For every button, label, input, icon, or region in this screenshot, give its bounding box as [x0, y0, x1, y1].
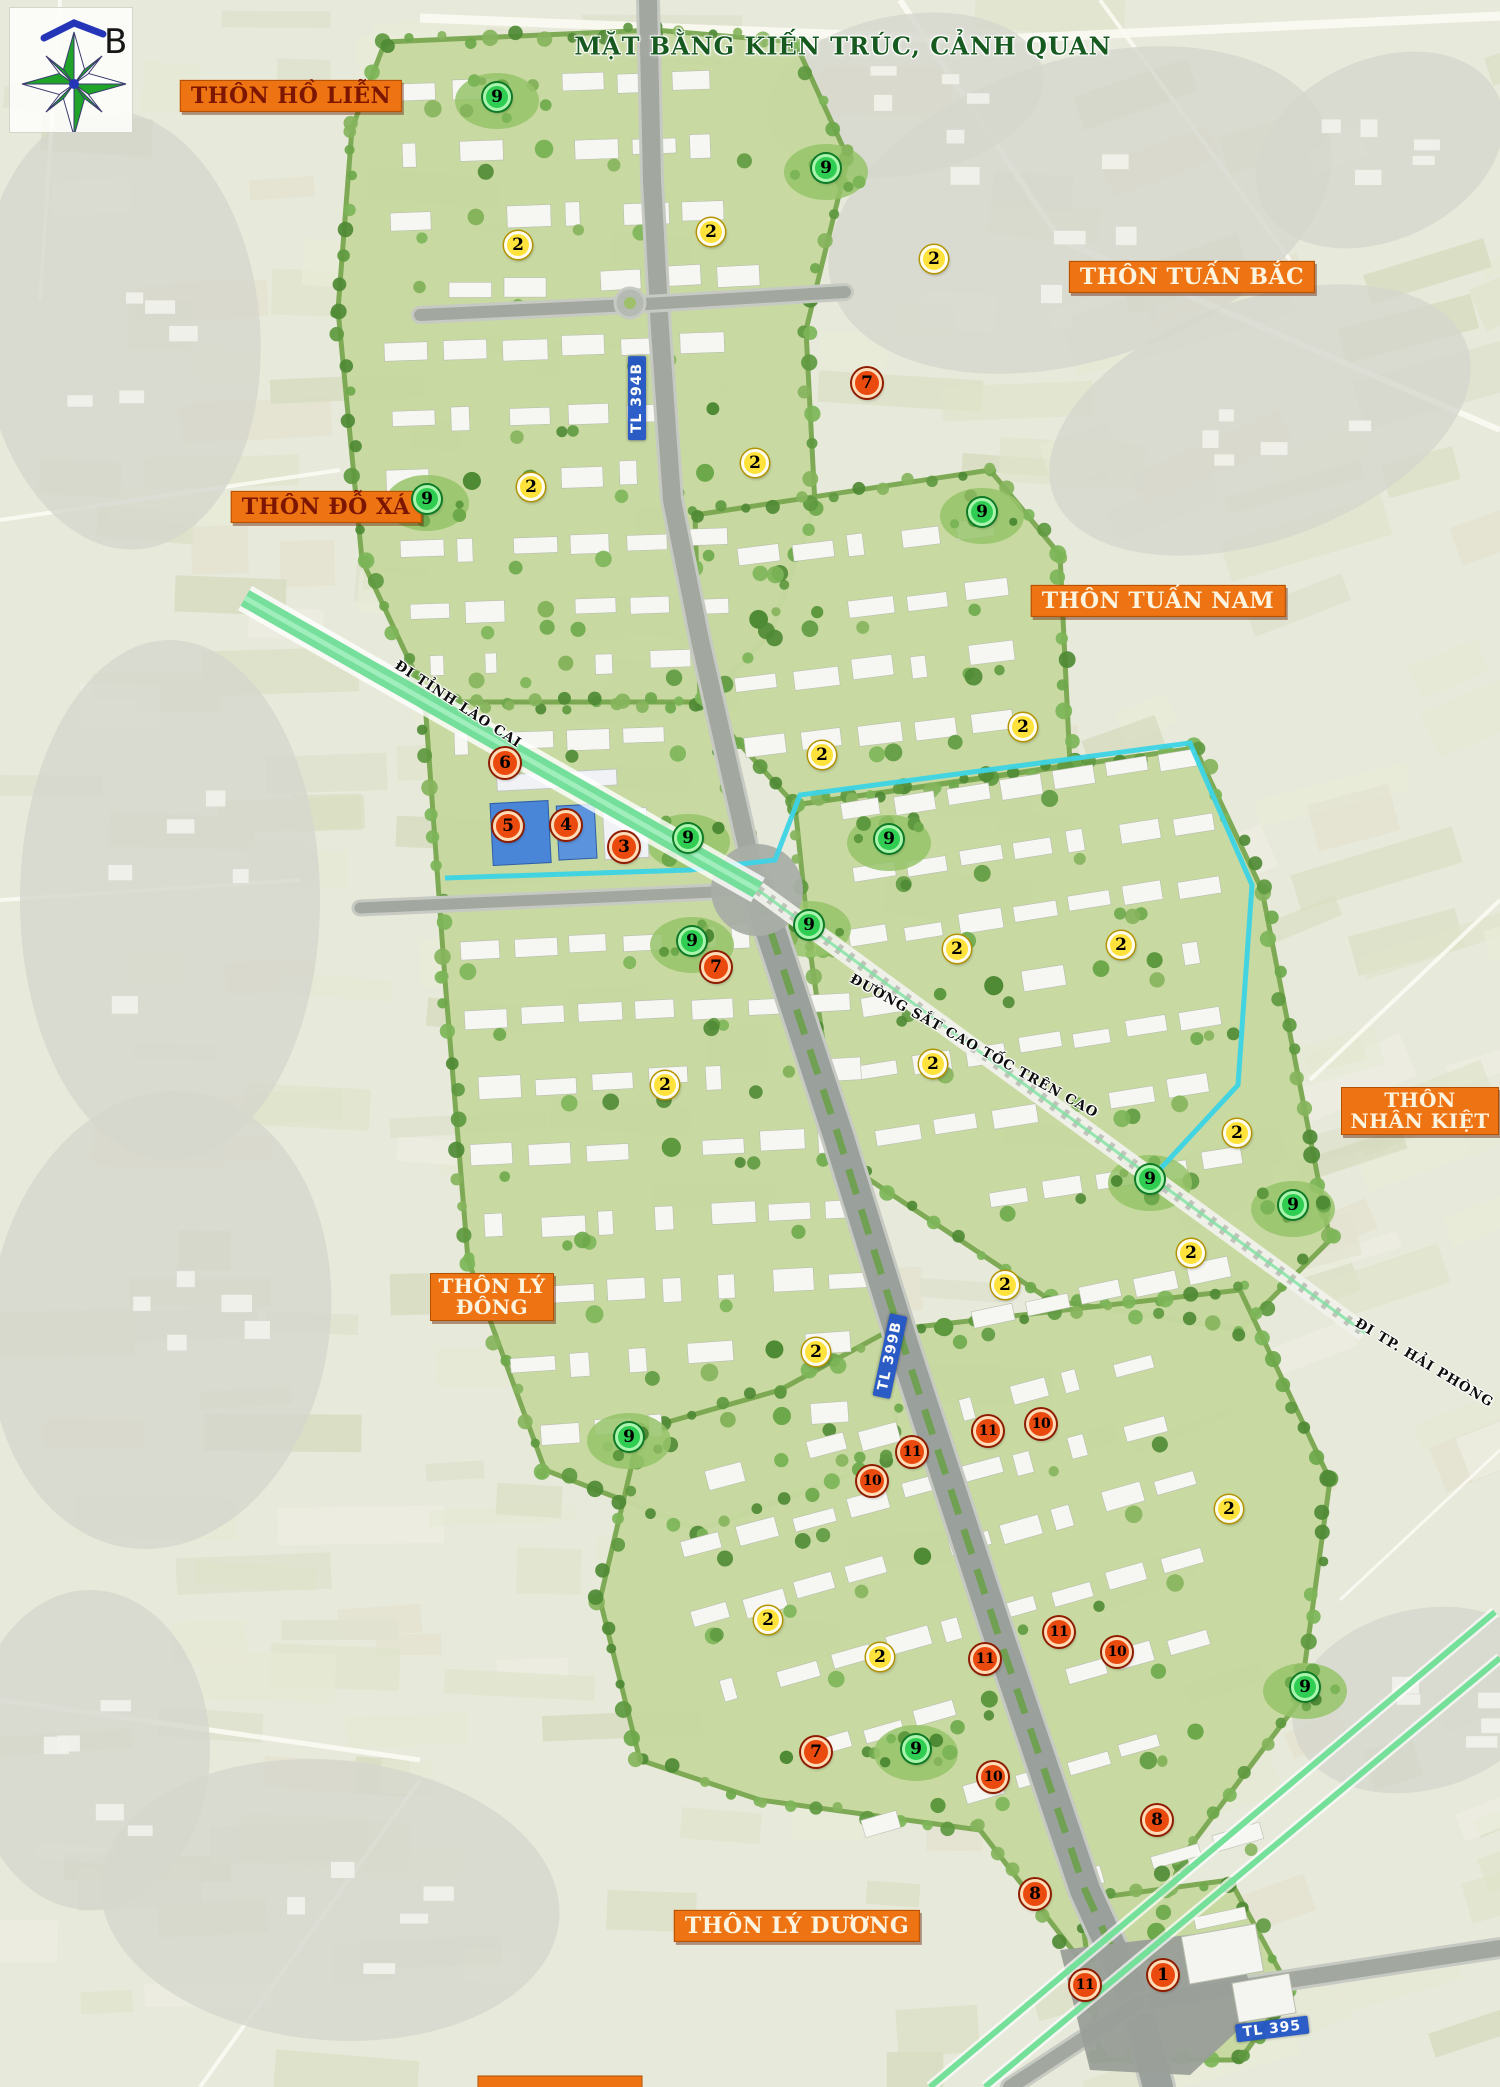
map-marker-11: 11	[1070, 1970, 1100, 2000]
map-marker-2: 2	[1215, 1495, 1243, 1523]
map-marker-7: 7	[801, 1737, 831, 1767]
road-sign-label: TL 394B	[628, 356, 646, 440]
map-marker-5: 5	[493, 811, 523, 841]
village-label-cutoff	[478, 2076, 643, 2087]
map-marker-2: 2	[517, 473, 545, 501]
map-marker-9: 9	[615, 1423, 643, 1451]
village-label: THÔN ĐỖ XÁ	[231, 491, 422, 523]
map-marker-2: 2	[920, 245, 948, 273]
master-plan-map: THÔN HỒ LIỄNTHÔN TUẤN BẮCTHÔN ĐỖ XÁTHÔN …	[0, 0, 1500, 2087]
map-marker-9: 9	[1291, 1673, 1319, 1701]
village-label: THÔN NHÂN KIỆT	[1341, 1087, 1499, 1135]
map-marker-1: 1	[1148, 1960, 1178, 1990]
map-marker-9: 9	[678, 927, 706, 955]
map-marker-2: 2	[991, 1271, 1019, 1299]
map-marker-2: 2	[808, 741, 836, 769]
map-marker-2: 2	[943, 935, 971, 963]
map-marker-9: 9	[1136, 1165, 1164, 1193]
village-label: THÔN TUẤN NAM	[1031, 585, 1286, 617]
map-marker-2: 2	[741, 449, 769, 477]
map-marker-9: 9	[483, 83, 511, 111]
map-marker-7: 7	[852, 368, 882, 398]
map-marker-2: 2	[866, 1643, 894, 1671]
map-marker-10: 10	[1102, 1637, 1132, 1667]
compass-north-label: B	[104, 22, 127, 62]
compass-rose: B	[10, 8, 132, 132]
map-marker-7: 7	[701, 952, 731, 982]
village-label: THÔN TUẤN BẮC	[1069, 261, 1315, 293]
map-marker-2: 2	[919, 1050, 947, 1078]
map-marker-11: 11	[1044, 1617, 1074, 1647]
village-label: THÔN LÝ ĐÔNG	[430, 1273, 554, 1321]
map-marker-4: 4	[551, 810, 581, 840]
map-marker-9: 9	[875, 825, 903, 853]
map-marker-9: 9	[902, 1735, 930, 1763]
map-marker-8: 8	[1142, 1805, 1172, 1835]
map-marker-6: 6	[490, 748, 520, 778]
map-marker-2: 2	[1177, 1239, 1205, 1267]
village-label: THÔN LÝ DƯƠNG	[674, 1910, 920, 1942]
map-marker-11: 11	[973, 1416, 1003, 1446]
map-marker-9: 9	[1279, 1191, 1307, 1219]
map-marker-11: 11	[970, 1644, 1000, 1674]
map-marker-2: 2	[504, 231, 532, 259]
map-marker-10: 10	[978, 1762, 1008, 1792]
base-map	[0, 0, 1500, 2087]
page-title: MẶT BẰNG KIẾN TRÚC, CẢNH QUAN	[574, 32, 1111, 61]
map-marker-9: 9	[812, 154, 840, 182]
map-marker-2: 2	[754, 1606, 782, 1634]
map-marker-2: 2	[1107, 931, 1135, 959]
village-label: THÔN HỒ LIỄN	[180, 80, 402, 112]
map-marker-3: 3	[609, 832, 639, 862]
map-marker-10: 10	[1026, 1409, 1056, 1439]
map-marker-9: 9	[968, 498, 996, 526]
map-marker-2: 2	[651, 1071, 679, 1099]
map-marker-9: 9	[413, 485, 441, 513]
map-marker-2: 2	[1223, 1119, 1251, 1147]
map-marker-9: 9	[795, 911, 823, 939]
map-marker-11: 11	[897, 1437, 927, 1467]
map-marker-2: 2	[802, 1338, 830, 1366]
map-marker-2: 2	[697, 218, 725, 246]
map-marker-10: 10	[857, 1466, 887, 1496]
map-marker-9: 9	[674, 824, 702, 852]
map-marker-2: 2	[1009, 713, 1037, 741]
map-marker-8: 8	[1020, 1879, 1050, 1909]
